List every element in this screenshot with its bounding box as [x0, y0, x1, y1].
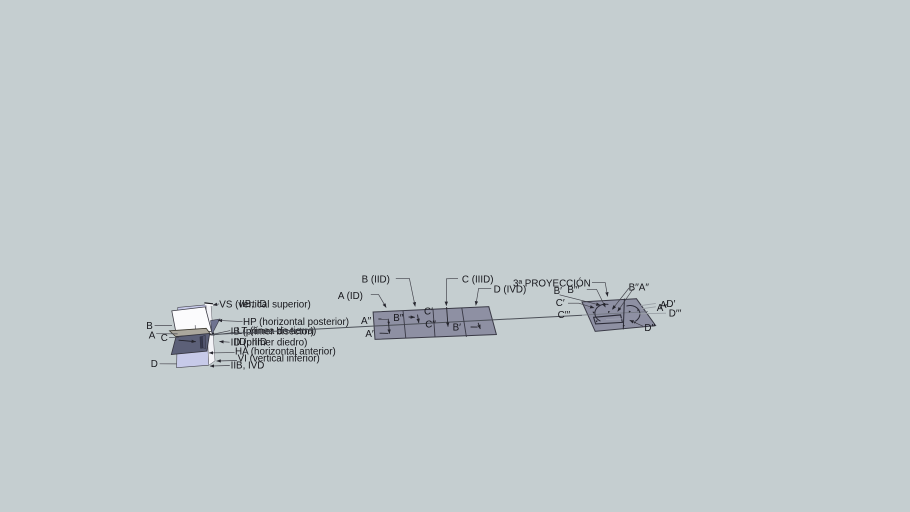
svg-text:C: C: [161, 333, 168, 344]
svg-text:B′′: B′′: [393, 313, 403, 324]
svg-text:C′: C′: [556, 298, 565, 309]
svg-text:C (IIID): C (IIID): [462, 275, 494, 286]
svg-text:C′′: C′′: [425, 319, 436, 330]
svg-text:C′′′: C′′′: [558, 310, 571, 321]
svg-text:B′: B′: [554, 286, 563, 297]
svg-text:D: D: [151, 359, 158, 370]
svg-text:IB (primer bisector): IB (primer bisector): [231, 326, 314, 337]
svg-text:D′′′: D′′′: [669, 308, 682, 319]
svg-text:A: A: [149, 331, 156, 342]
svg-text:B′: B′: [453, 322, 462, 333]
svg-text:IIB, IVD: IIB, IVD: [231, 361, 265, 372]
svg-text:B′′′: B′′′: [567, 285, 579, 296]
svg-text:B (IID): B (IID): [362, 275, 390, 286]
svg-text:A (ID): A (ID): [338, 291, 363, 302]
svg-text:B′′A′′: B′′A′′: [629, 282, 650, 293]
svg-text:D′′: D′′: [644, 323, 655, 334]
svg-text:A′: A′: [365, 329, 374, 340]
svg-text:C′: C′: [424, 306, 433, 317]
svg-text:IIB, ID: IIB, ID: [239, 299, 266, 310]
svg-text:A′′: A′′: [361, 316, 371, 327]
